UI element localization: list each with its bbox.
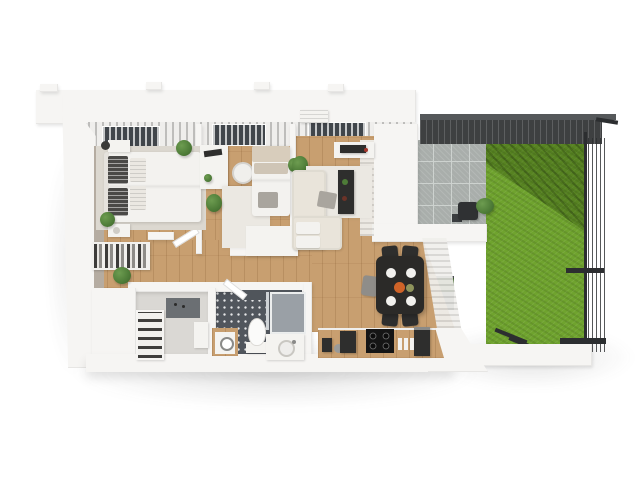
washing-machine-door xyxy=(220,337,234,351)
sofa-cushion-2 xyxy=(296,236,320,248)
master-table-lamp xyxy=(101,141,110,150)
floorplan-render xyxy=(0,0,640,480)
sofa-cushion-1 xyxy=(296,222,320,234)
master-nightstand-top xyxy=(108,140,130,152)
railing-bar-middle xyxy=(566,268,604,273)
kitchen-oven xyxy=(340,331,356,353)
table-centerpiece xyxy=(406,284,414,292)
master-plant-top xyxy=(176,140,192,156)
plate-1 xyxy=(386,268,396,278)
sideboard-accent xyxy=(364,148,368,152)
entry-small-sink xyxy=(194,322,208,348)
master-pillow-light-2 xyxy=(130,186,146,210)
top-wall-tab-3 xyxy=(254,82,270,90)
entry-dark-panel xyxy=(166,298,200,318)
wall-master-door-stub xyxy=(148,232,174,240)
ac-unit xyxy=(300,110,328,123)
shower-glass xyxy=(266,292,269,330)
coffee-table-plant xyxy=(342,179,348,185)
outdoor-chair xyxy=(458,202,478,220)
master-pillow-dark-2 xyxy=(108,188,128,216)
kitchen-grinder xyxy=(322,338,332,352)
open-clothes-rack xyxy=(92,242,150,270)
coffee-table xyxy=(338,170,354,214)
hall-plant xyxy=(113,267,131,284)
master-pillow-light-1 xyxy=(130,158,146,182)
bed2-plant-left xyxy=(206,194,222,212)
toilet xyxy=(248,318,266,346)
shower xyxy=(270,292,306,334)
railing-mesh xyxy=(584,138,606,352)
master-lamp-bottom xyxy=(113,227,120,234)
coffee-table-item xyxy=(342,196,347,201)
plate-2 xyxy=(406,268,416,278)
wall-living-right xyxy=(374,124,418,238)
kitchen-coffee-machine xyxy=(414,327,430,356)
bookshelf xyxy=(246,226,298,256)
kitchen-canisters xyxy=(398,338,402,350)
balcony-bush xyxy=(476,198,494,214)
master-pillow-dark-1 xyxy=(108,156,128,184)
bathroom-faucet xyxy=(292,340,296,344)
entry-wall-hooks xyxy=(174,303,177,306)
entry-shoe-rack xyxy=(136,310,164,360)
orange-bowl xyxy=(394,282,405,293)
plate-3 xyxy=(386,296,396,306)
bed2-pillow-beige xyxy=(252,146,290,162)
bed2-desk-plant xyxy=(204,174,212,182)
top-wall-tab-1 xyxy=(40,84,58,92)
pergola xyxy=(420,120,602,144)
bed2-chair xyxy=(232,162,254,184)
tv xyxy=(340,145,366,153)
sofa-pillow-grey xyxy=(317,191,338,210)
plate-4 xyxy=(406,296,416,306)
master-plant-bottom xyxy=(100,212,115,227)
second-bedroom-window xyxy=(212,124,266,146)
top-exterior-wall xyxy=(36,90,416,124)
top-wall-tab-2 xyxy=(146,82,162,90)
bed2-cushion-grey xyxy=(258,192,278,208)
bed2-pillow-2 xyxy=(254,163,288,174)
railing-post xyxy=(584,132,587,354)
top-wall-tab-4 xyxy=(328,84,344,92)
kitchen-cooktop xyxy=(366,329,394,353)
